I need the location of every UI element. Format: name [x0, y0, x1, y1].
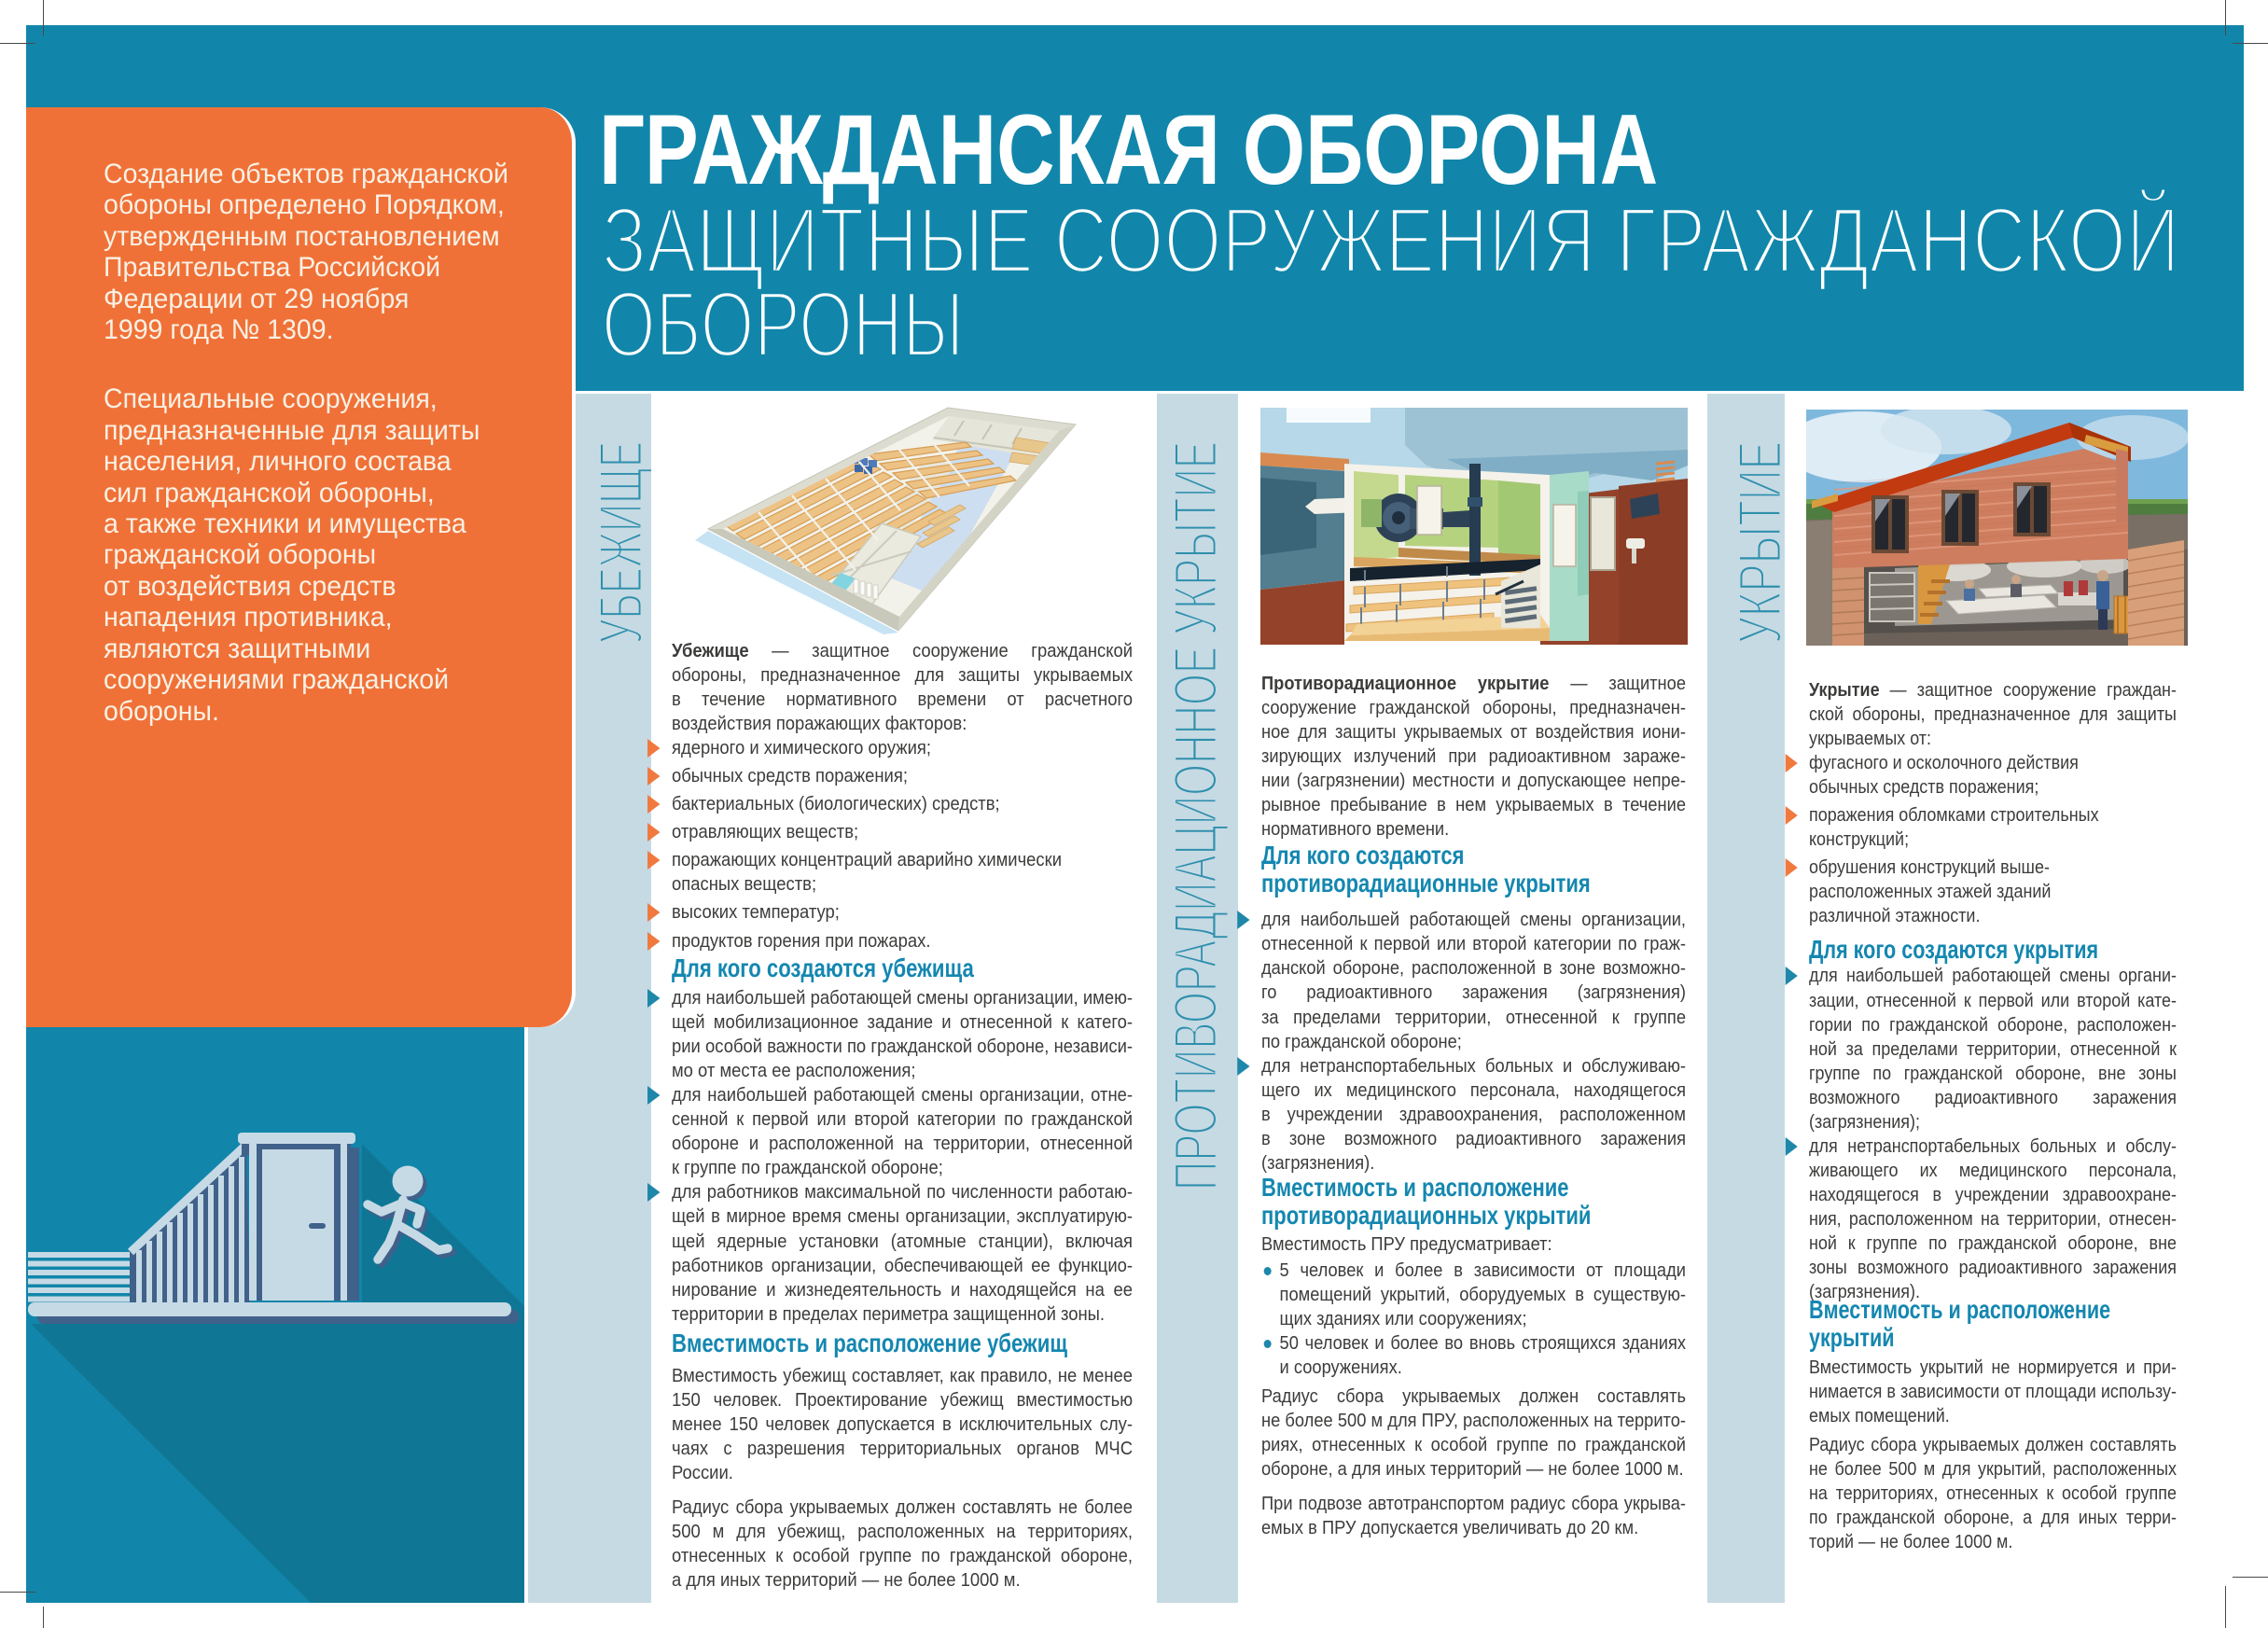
svg-text:ПРОТИВОРАДИАЦИОННОЕ УКРЫТИЕ: ПРОТИВОРАДИАЦИОННОЕ УКРЫТИЕ	[1161, 441, 1230, 1190]
svg-text:УБЕЖИЩЕ: УБЕЖИЩЕ	[586, 441, 651, 644]
svg-text:УКРЫТИЕ: УКРЫТИЕ	[1725, 441, 1785, 644]
